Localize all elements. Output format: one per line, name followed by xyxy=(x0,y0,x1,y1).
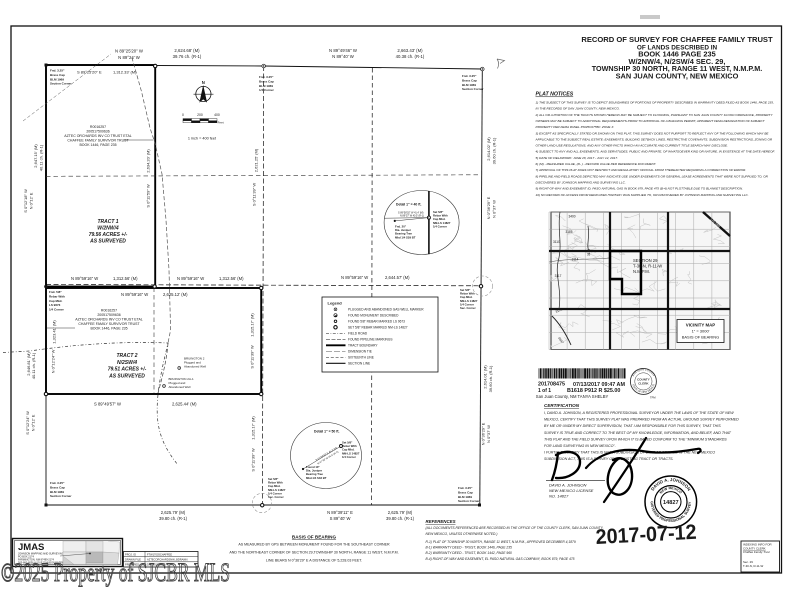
svg-text:2,625.44' (M): 2,625.44' (M) xyxy=(172,402,197,407)
svg-text:VICINITY MAP: VICINITY MAP xyxy=(686,323,716,328)
svg-text:FOUND MONUMENT DESCRIBED: FOUND MONUMENT DESCRIBED xyxy=(348,314,399,318)
svg-text:Brass Cap: Brass Cap xyxy=(259,79,274,83)
svg-text:N 0°37' W: N 0°37' W xyxy=(492,200,497,218)
svg-text:3) EXCEPT AS SPECIFICALLY STAT: 3) EXCEPT AS SPECIFICALLY STATED OR SHOW… xyxy=(536,131,770,135)
svg-text:1/4 Corner: 1/4 Corner xyxy=(433,224,448,228)
svg-text:3105: 3105 xyxy=(565,230,572,234)
svg-text:1,312.33' (M): 1,312.33' (M) xyxy=(113,70,137,75)
svg-text:CHAFFEE FAMILY SURVIVOR TRUST: CHAFFEE FAMILY SURVIVOR TRUST xyxy=(78,322,140,326)
svg-text:DAVID A. JOHNSON: DAVID A. JOHNSON xyxy=(549,483,587,488)
svg-text:LS 9673: LS 9673 xyxy=(49,303,61,307)
svg-text:N 89°59'16" W: N 89°59'16" W xyxy=(177,276,204,281)
svg-text:5) DATE OF FIELDWORK: JUNE 28,: 5) DATE OF FIELDWORK: JUNE 28, 2017 - JU… xyxy=(536,156,619,160)
svg-text:B-4) RIGHT-OF-WAY AND EASEMENT: B-4) RIGHT-OF-WAY AND EASEMENT, EL PASO … xyxy=(426,557,575,561)
svg-text:FOUND PIPELINE MARKINGS: FOUND PIPELINE MARKINGS xyxy=(348,338,392,342)
svg-text:AZTEC ORCHARDS INV CO TRUST ET: AZTEC ORCHARDS INV CO TRUST ETAL xyxy=(64,134,132,138)
svg-text:N 0°37' W: N 0°37' W xyxy=(486,425,491,443)
svg-text:1,312.56' (M): 1,312.56' (M) xyxy=(219,276,244,281)
svg-text:2,614.02' (M): 2,614.02' (M) xyxy=(486,137,491,161)
svg-text:FTW17003CHAFFEE: FTW17003CHAFFEE xyxy=(147,552,172,556)
svg-text:N 89°49'46" W: N 89°49'46" W xyxy=(329,48,358,53)
svg-text:LINE BEARS N 0°36'29" E A DI: LINE BEARS N 0°36'29" E A DISTANCE OF 5,… xyxy=(266,559,362,563)
svg-text:39.60 ch. (R-1): 39.60 ch. (R-1) xyxy=(488,365,493,392)
svg-text:79.56 ACRES +/-: 79.56 ACRES +/- xyxy=(89,232,128,238)
svg-text:14827: 14827 xyxy=(663,500,679,506)
svg-text:10) NO RECORD OF ACCESS FROM D: 10) NO RECORD OF ACCESS FROM DEDICATED H… xyxy=(536,193,749,197)
svg-text:BASIS OF BEARING: BASIS OF BEARING xyxy=(682,335,720,340)
svg-text:N 89°24' W: N 89°24' W xyxy=(118,55,141,60)
svg-text:1/4 Corner: 1/4 Corner xyxy=(259,88,275,92)
svg-text:CHAFFEE FAMILY SURVIVOR TRUST: CHAFFEE FAMILY SURVIVOR TRUST xyxy=(67,139,129,143)
svg-text:B-1) WARRANTY DEED - TRUST, BO: B-1) WARRANTY DEED - TRUST, BOOK 1446, P… xyxy=(426,546,513,550)
svg-text:1,315.17' (M): 1,315.17' (M) xyxy=(250,313,255,337)
svg-text:200517509636: 200517509636 xyxy=(86,130,109,134)
svg-text:SET 5/8" REBAR MARKED NM-LS 14: SET 5/8" REBAR MARKED NM-LS 14827 xyxy=(348,326,408,330)
svg-text:AS SURVEYED: AS SURVEYED xyxy=(108,373,145,379)
svg-text:BOOK 1446, PAGE 235: BOOK 1446, PAGE 235 xyxy=(90,327,127,331)
svg-text:2,614.01' (M): 2,614.01' (M) xyxy=(483,365,488,389)
svg-text:JMAS: JMAS xyxy=(18,542,44,553)
svg-text:6) (M) - MEASURED VALUE, (R- ): 6) (M) - MEASURED VALUE, (R- ) - RECORD … xyxy=(536,162,657,166)
svg-text:200: 200 xyxy=(197,113,203,117)
svg-text:N 0°36'29" E: N 0°36'29" E xyxy=(481,422,486,445)
svg-text:1) THE SUBJECT OF THIS SURVEY: 1) THE SUBJECT OF THIS SURVEY IS TO DEPI… xyxy=(536,101,774,105)
svg-text:R0016257: R0016257 xyxy=(90,125,106,129)
svg-text:Section Corner: Section Corner xyxy=(462,87,484,91)
svg-text:3117: 3117 xyxy=(555,274,562,278)
svg-text:3110: 3110 xyxy=(553,240,560,244)
svg-text:BY ME OR UNDER MY DIRECT SUPER: BY ME OR UNDER MY DIRECT SUPERVISION, TH… xyxy=(544,424,721,428)
svg-text:4) SUBJECT TO ANY AND ALL EASE: 4) SUBJECT TO ANY AND ALL EASEMENTS, AND… xyxy=(536,150,776,154)
svg-text:S 89°49'57" W: S 89°49'57" W xyxy=(94,402,121,407)
svg-text:Sec. Corner: Sec. Corner xyxy=(460,306,477,310)
svg-text:APPLICABLE TO THE SUBJECT REAL: APPLICABLE TO THE SUBJECT REAL ESTATE: E… xyxy=(535,137,773,141)
svg-text:BLM 1969: BLM 1969 xyxy=(50,490,64,494)
svg-text:40.11 ch. (R-1): 40.11 ch. (R-1) xyxy=(31,352,36,379)
svg-text:FOR LAND SURVEYING IN NEW MEXI: FOR LAND SURVEYING IN NEW MEXICO". xyxy=(544,444,616,448)
svg-text:Feet: Feet xyxy=(218,121,224,125)
svg-text:OTHER LAND USE REGULATIONS, AN: OTHER LAND USE REGULATIONS, AND ANY OTHE… xyxy=(536,144,729,148)
svg-text:BLM 1969: BLM 1969 xyxy=(462,83,476,87)
svg-text:2,625.79' (M): 2,625.79' (M) xyxy=(388,510,413,515)
svg-text:Cap Mkd.: Cap Mkd. xyxy=(49,299,63,303)
svg-text:2,621.25' (M): 2,621.25' (M) xyxy=(254,148,259,172)
svg-text:40.38 ch. (R-1): 40.38 ch. (R-1) xyxy=(396,54,425,59)
svg-text:NEW MEXICO LICENSE: NEW MEXICO LICENSE xyxy=(549,488,594,493)
svg-text:2,625.12' (M): 2,625.12' (M) xyxy=(163,292,188,297)
svg-text:1,323.41' (M): 1,323.41' (M) xyxy=(52,320,57,344)
svg-text:Abandoned Well: Abandoned Well xyxy=(169,385,191,389)
svg-text:Fnd. 3.25": Fnd. 3.25" xyxy=(458,486,473,490)
svg-text:TRACT 1: TRACT 1 xyxy=(97,219,118,225)
svg-text:Sec. Corner: Sec. Corner xyxy=(268,495,285,499)
svg-text:S 89°25'20" E: S 89°25'20" E xyxy=(77,70,102,75)
svg-text:N 89°25'20" W: N 89°25'20" W xyxy=(115,49,144,54)
svg-text:Section Corner: Section Corner xyxy=(50,494,72,498)
svg-text:Fnd. 3.25": Fnd. 3.25" xyxy=(462,74,477,78)
svg-text:N.M.P.M.: N.M.P.M. xyxy=(633,269,650,274)
svg-text:W/2NW/4: W/2NW/4 xyxy=(97,225,119,231)
svg-text:N 89°59'16" W: N 89°59'16" W xyxy=(121,292,148,297)
svg-text:Detail 1" = 50 ft.: Detail 1" = 50 ft. xyxy=(314,430,340,434)
svg-text:FIELD ROAD: FIELD ROAD xyxy=(348,332,368,336)
svg-text:SURVEY IS TRUE AND CORRECT TO: SURVEY IS TRUE AND CORRECT TO THE BEST O… xyxy=(544,431,732,435)
svg-text:Legend: Legend xyxy=(328,301,343,306)
svg-text:DIMENSION TIE: DIMENSION TIE xyxy=(348,350,372,354)
svg-text:1 inch = 400 feet: 1 inch = 400 feet xyxy=(188,137,217,141)
svg-text:Mkd.1/4 S32 BT: Mkd.1/4 S32 BT xyxy=(306,476,327,480)
svg-text:39.80 ch. (R-1): 39.80 ch. (R-1) xyxy=(386,516,415,521)
svg-text:N 89°59'16" W: N 89°59'16" W xyxy=(341,275,368,280)
svg-text:Section Corner: Section Corner xyxy=(458,499,480,503)
svg-text:Mkd 1/4 S29 BT: Mkd 1/4 S29 BT xyxy=(395,235,416,239)
svg-text:Fnd. 3.25": Fnd. 3.25" xyxy=(259,75,274,79)
svg-text:N/2SW/4: N/2SW/4 xyxy=(117,360,137,366)
svg-text:TPM: TPM xyxy=(650,395,655,399)
svg-text:Fnd. 5/8": Fnd. 5/8" xyxy=(49,290,62,294)
svg-text:SAN JUAN COUNTY, NEW MEXICO: SAN JUAN COUNTY, NEW MEXICO xyxy=(616,71,739,80)
svg-text:79.51 ACRES +/-: 79.51 ACRES +/- xyxy=(108,367,147,373)
svg-text:201708475: 201708475 xyxy=(538,382,565,388)
svg-text:1/4 Corner: 1/4 Corner xyxy=(49,308,65,312)
svg-text:Detail 1" = 40 ft.: Detail 1" = 40 ft. xyxy=(396,203,422,207)
svg-text:N: N xyxy=(202,80,205,85)
svg-text:CLERK: CLERK xyxy=(638,381,649,385)
svg-text:BOOK 1446, PAGE 235: BOOK 1446, PAGE 235 xyxy=(79,143,116,147)
svg-text:07/13/2017 09:47 AM: 07/13/2017 09:47 AM xyxy=(573,382,625,388)
svg-text:R0016257: R0016257 xyxy=(101,309,117,313)
svg-text:Chaffee Family Trust: Chaffee Family Trust xyxy=(743,550,770,554)
svg-text:7) APPROVAL OF THIS PLAT DOES: 7) APPROVAL OF THIS PLAT DOES NOT RESTRI… xyxy=(536,168,747,172)
svg-text:S 89°40' W: S 89°40' W xyxy=(330,516,351,521)
svg-text:1" = 3000': 1" = 3000' xyxy=(692,329,710,334)
svg-text:BASIS OF BEARING: BASIS OF BEARING xyxy=(292,535,337,540)
svg-text:S 0°12'18" W: S 0°12'18" W xyxy=(23,189,28,213)
svg-text:Section Corner: Section Corner xyxy=(50,82,72,86)
svg-text:REFERENCES: REFERENCES xyxy=(426,519,456,524)
svg-text:I, DAVID A. JOHNSON, A REGISTE: I, DAVID A. JOHNSON, A REGISTERED PROFES… xyxy=(544,411,734,415)
svg-text:SUBDIVISION ACT, THIS IS A SUR: SUBDIVISION ACT, THIS IS A SURVEY OF AN … xyxy=(544,457,674,461)
svg-text:N 0°12'24" W: N 0°12'24" W xyxy=(51,349,56,373)
svg-text:3150: 3150 xyxy=(587,249,591,256)
svg-text:Abandoned Well: Abandoned Well xyxy=(184,365,206,369)
svg-text:N 89°40' W: N 89°40' W xyxy=(332,54,355,59)
svg-text:N 89°57' W 40.5' (R-1): N 89°57' W 40.5' (R-1) xyxy=(400,214,424,217)
svg-text:NEW MEXICO, UNLESS OTHERWISE N: NEW MEXICO, UNLESS OTHERWISE NOTED.) xyxy=(426,532,498,536)
svg-text:39.76 ch. (R-1): 39.76 ch. (R-1) xyxy=(173,54,202,59)
svg-text:PLUGGED AND ABANDONED GAS WELL: PLUGGED AND ABANDONED GAS WELL MARKER xyxy=(348,308,424,312)
svg-text:1/4 Corner: 1/4 Corner xyxy=(342,455,357,459)
svg-text:San Juan County, NM TANYA SHE: San Juan County, NM TANYA SHELBY xyxy=(536,394,609,399)
svg-text:BLM 1969: BLM 1969 xyxy=(458,495,472,499)
svg-text:200517509636: 200517509636 xyxy=(97,313,120,317)
svg-text:2) ALL OR A PORTION OF THE TRA: 2) ALL OR A PORTION OF THE TRACTS SHOWN … xyxy=(535,113,774,117)
svg-text:Fnd. 3.25": Fnd. 3.25" xyxy=(50,69,65,73)
svg-text:NO. 14827: NO. 14827 xyxy=(549,494,569,499)
svg-text:8) PIPELINE AND FIELD ROADS DE: 8) PIPELINE AND FIELD ROADS DEPICTED MAY… xyxy=(536,174,769,178)
svg-text:FOUND 5/8" REBAR MARKED LS 967: FOUND 5/8" REBAR MARKED LS 9673 xyxy=(348,320,405,324)
svg-text:N 0°36'29" E: N 0°36'29" E xyxy=(486,196,491,219)
svg-text:Brass Cap: Brass Cap xyxy=(458,490,473,494)
svg-text:R-1) PLAT OF TOWNSHIP 30 NORTH: R-1) PLAT OF TOWNSHIP 30 NORTH, RANGE 11… xyxy=(426,540,576,544)
svg-text:T-30-N, R-11-W: T-30-N, R-11-W xyxy=(633,264,662,269)
svg-text:S 0°11'39" W: S 0°11'39" W xyxy=(251,448,256,472)
svg-text:AND THE NORTHEAST CORNER OF SE: AND THE NORTHEAST CORNER OF SECTION 29,T… xyxy=(229,551,398,555)
svg-text:2,634.20' (M): 2,634.20' (M) xyxy=(146,149,151,173)
svg-text:2,644.57' (M): 2,644.57' (M) xyxy=(385,275,410,280)
svg-text:OWNERS MAY BE SUBJECT TO ADDIT: OWNERS MAY BE SUBJECT TO ADDITIONAL REQU… xyxy=(536,119,766,123)
svg-text:S 0°12'24" W: S 0°12'24" W xyxy=(25,411,30,435)
svg-text:T-30-N, R-11-W: T-30-N, R-11-W xyxy=(743,564,763,568)
svg-text:2,624.68' (M): 2,624.68' (M) xyxy=(174,48,200,53)
svg-text:BLM 1969: BLM 1969 xyxy=(259,84,273,88)
svg-text:400: 400 xyxy=(214,113,220,117)
svg-text:TRACT 2: TRACT 2 xyxy=(116,353,137,359)
svg-text:AZTEC ORCHARDS INV CO TRUST ET: AZTEC ORCHARDS INV CO TRUST ETAL xyxy=(75,318,143,322)
svg-text:RECORD OF SURVEY FOR CHAFFEE F: RECORD OF SURVEY FOR CHAFFEE FAMILY TRUS… xyxy=(581,35,773,44)
svg-text:SECTION 29: SECTION 29 xyxy=(633,258,658,263)
svg-text:BLM 1969: BLM 1969 xyxy=(50,77,64,81)
svg-text:CERTIFICATION: CERTIFICATION xyxy=(544,403,580,408)
svg-text:Brass Cap: Brass Cap xyxy=(50,485,65,489)
svg-text:SECTION LINE: SECTION LINE xyxy=(348,362,370,366)
svg-text:TRACT BOUNDARY: TRACT BOUNDARY xyxy=(348,344,378,348)
svg-text:0: 0 xyxy=(182,113,184,117)
svg-text:N 89°59'16" W: N 89°59'16" W xyxy=(71,276,98,281)
svg-text:9) RIGHT-OF-WAY AND EASEMENT I: 9) RIGHT-OF-WAY AND EASEMENT ID, PASO NA… xyxy=(536,187,744,191)
svg-text:39.80 ch. (R-1): 39.80 ch. (R-1) xyxy=(159,516,188,521)
svg-text:B-2) WARRANTY DEED - TRUST, BO: B-2) WARRANTY DEED - TRUST, BOOK 1442, P… xyxy=(426,551,513,555)
svg-text:39.60 ch. (R-1): 39.60 ch. (R-1) xyxy=(492,137,497,164)
svg-text:1,312.56' (M): 1,312.56' (M) xyxy=(113,276,138,281)
svg-text:©2025 Property of SJCBR MLS: ©2025 Property of SJCBR MLS xyxy=(1,558,230,587)
svg-text:IN THE RECORDS OF SAN JUAN COU: IN THE RECORDS OF SAN JUAN COUNTY, NEW M… xyxy=(536,107,620,111)
svg-text:MEXICO, CERTIFY THAT THIS SURV: MEXICO, CERTIFY THAT THIS SURVEY PLAT WA… xyxy=(544,418,739,422)
svg-text:(ALL DOCUMENTS REFERENCED ARE: (ALL DOCUMENTS REFERENCED ARE RECORDED I… xyxy=(426,526,604,530)
svg-text:N 0°12' E: N 0°12' E xyxy=(29,192,34,209)
svg-text:THIS PLAT AND THE FIELD SURVEY: THIS PLAT AND THE FIELD SURVEY UPON WHIC… xyxy=(544,437,727,441)
svg-text:S 0°11'39" W: S 0°11'39" W xyxy=(250,345,255,369)
svg-text:DISCOVERED BY JOHNSON MAPPING: DISCOVERED BY JOHNSON MAPPING AND SURVEY… xyxy=(536,180,626,184)
svg-text:Brass Cap: Brass Cap xyxy=(462,78,477,82)
svg-text:S 0°11'59" W: S 0°11'59" W xyxy=(146,184,151,208)
svg-text:SIXTEENTH LINE: SIXTEENTH LINE xyxy=(348,356,374,360)
svg-text:Brass Cap: Brass Cap xyxy=(50,73,65,77)
svg-text:2,625.79' (M): 2,625.79' (M) xyxy=(161,510,186,515)
svg-text:Fnd. 3.25": Fnd. 3.25" xyxy=(50,481,65,485)
svg-text:N 0°12' E: N 0°12' E xyxy=(31,414,36,431)
svg-text:2,663.43' (M): 2,663.43' (M) xyxy=(397,48,423,53)
svg-text:2,647.15' (M): 2,647.15' (M) xyxy=(33,144,38,168)
svg-text:N 89°39'11" E: N 89°39'11" E xyxy=(327,510,353,515)
svg-text:1,315.17' (M): 1,315.17' (M) xyxy=(251,416,256,440)
svg-text:PROJ. ID: PROJ. ID xyxy=(125,552,136,556)
svg-text:S 0°11'39" W: S 0°11'39" W xyxy=(252,183,257,207)
svg-text:3114: 3114 xyxy=(572,258,579,262)
svg-text:40.11 ch. (R-1): 40.11 ch. (R-1) xyxy=(39,144,44,171)
svg-text:AS MEASURED BY GPS BETWEEN MO: AS MEASURED BY GPS BETWEEN MONUMENT FOUN… xyxy=(238,543,390,547)
svg-text:PLAT NOTICES: PLAT NOTICES xyxy=(536,92,574,98)
svg-text:Rebar With: Rebar With xyxy=(49,294,65,298)
svg-text:3400: 3400 xyxy=(568,215,575,219)
svg-text:PROPERTY PER FEMA PANEL 35045C: PROPERTY PER FEMA PANEL 35045C0755F: ZON… xyxy=(536,125,615,129)
svg-text:AS SURVEYED: AS SURVEYED xyxy=(89,239,126,245)
